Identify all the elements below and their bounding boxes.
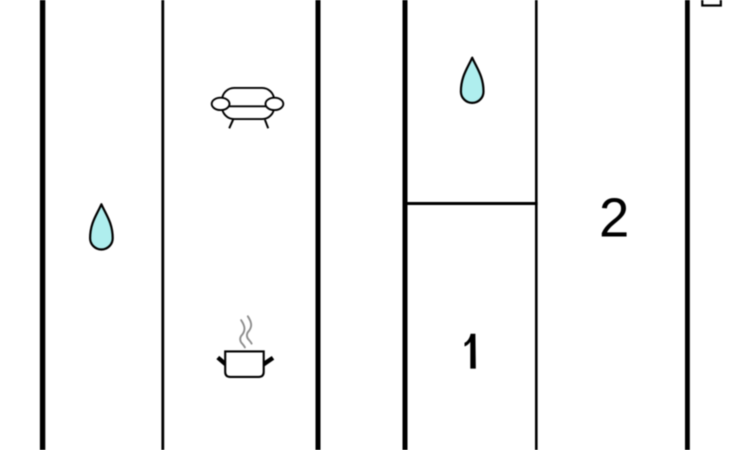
svg-text:2: 2 (599, 187, 629, 248)
